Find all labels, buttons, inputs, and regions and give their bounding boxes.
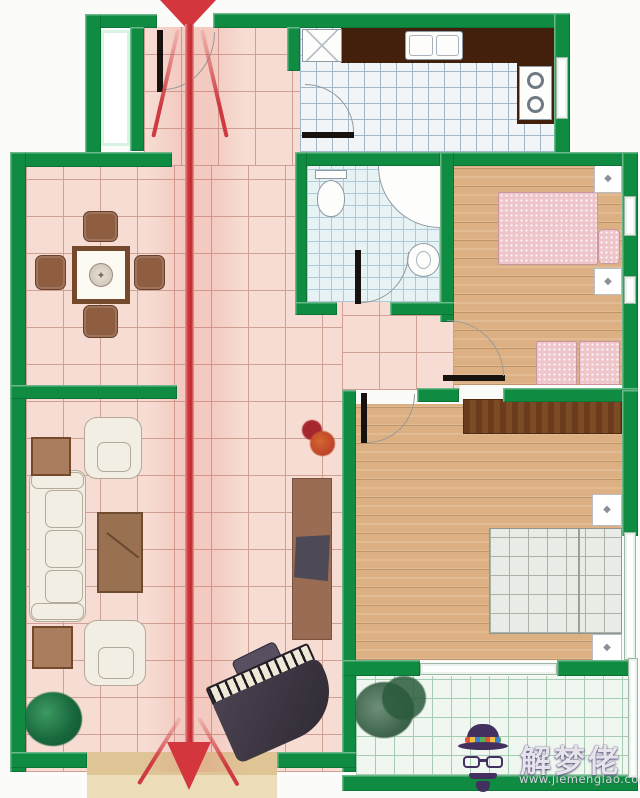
glasses-bridge [479,759,487,762]
wall-bedrooms-divider [503,388,638,402]
dining-chair-left [35,255,66,290]
armchair-top [84,417,142,479]
wall-living-bottom-right [277,752,356,768]
diamond-icon: ◆ [603,505,611,515]
toilet-bowl [317,180,345,217]
wall-kitchen-hall-divider [287,27,300,71]
wall-bathroom-bottom-left [295,302,337,315]
balcony-plant-2 [382,676,426,720]
arrow-shaft [185,24,194,746]
floor-plan-canvas: ✦ [0,0,640,798]
stove [519,66,552,120]
goatee [476,781,490,792]
dining-chair-top [83,211,118,242]
watermark-url: www.jiemenglao.com [519,772,640,786]
bath-sink-basin [416,251,431,269]
wall-entry-left [85,14,101,158]
wall-dining-living-divider [10,385,177,399]
bedroom2-bed [489,528,622,634]
sofa-cushion-3 [45,570,83,603]
living-plant [24,692,82,746]
tv [294,535,330,583]
sink-basin-right [436,35,459,56]
bath-sink [407,243,440,277]
kitchen-door-leaf [302,132,354,138]
medallion-icon: ✦ [96,269,105,282]
bedroom1-window-2 [624,276,636,304]
arrow-path-red-wash [148,27,244,772]
wall-entry-niche-right [130,27,144,151]
armchair-bottom-cushion [98,647,134,679]
bedroom1-pillow [598,229,620,264]
bedroom1-window-1 [624,196,636,236]
dining-table-medallion: ✦ [89,263,113,287]
sofa-cushion-2 [45,530,83,568]
diamond-icon: ◆ [604,277,612,287]
sink-basin-left [409,35,433,56]
dining-table: ✦ [72,246,130,304]
bedroom1-bench-seat-1 [536,341,577,385]
wall-bedroom2-bottom-left [342,660,420,676]
fridge [302,29,342,62]
toilet-tank [315,170,347,179]
side-table-bottom [32,626,73,669]
armchair-bottom [84,620,146,686]
wall-bathroom-right [440,152,454,322]
dining-chair-right [134,255,165,290]
wall-bedroom2-right [622,390,638,536]
wall-bedroom1-top [440,152,638,166]
bedroom1-nightstand-bottom: ◆ [594,268,622,295]
armchair-top-cushion [97,442,131,472]
wall-bedroom2-bottom-right [557,660,638,676]
wall-bedroom2-top-left [417,388,459,402]
red-flowers-2 [310,431,335,456]
bedroom1-nightstand-top: ◆ [594,165,622,193]
bedroom2-nightstand-top: ◆ [592,494,622,526]
glasses-right-lens [486,756,503,768]
sofa-cushion-1 [45,490,83,528]
side-table-top [31,437,71,476]
diamond-icon: ◆ [604,174,612,184]
coffee-table [97,512,143,593]
entry-niche [101,30,130,146]
bedroom2-nightstand-bottom: ◆ [592,634,622,661]
wardrobe [463,399,622,434]
wall-bathroom-top [295,152,440,166]
wall-living-bottom-left [10,752,87,768]
hat-brim [458,742,508,750]
arrow-head-bottom [167,742,211,790]
burner-2 [527,96,544,113]
wall-bathroom-left [295,152,307,314]
mustache [469,773,497,779]
bedroom2-window [624,532,636,660]
kitchen-sink [405,31,463,60]
wall-left-outer [10,152,26,772]
watermark: 解梦佬 www.jiemenglao.com [452,724,637,794]
wall-dining-top [10,152,172,167]
diamond-icon: ◆ [603,643,611,653]
coffee-table-sheen [106,532,139,558]
bedroom1-bench-seat-2 [579,341,620,385]
glasses-left-lens [463,756,480,768]
sofa [29,470,86,622]
wall-top-main [213,13,570,28]
wall-bathroom-bottom-right [390,302,454,315]
bedroom2-bed-pillow-line [578,529,580,633]
sofa-arm-bottom [31,603,84,620]
detective-icon [452,724,514,792]
wall-bedroom1-right [622,152,638,390]
dining-chair-bottom [83,305,118,338]
burner-1 [527,72,544,89]
bedroom1-bed [498,192,598,265]
balcony-door-threshold [420,663,557,675]
wall-living-bedroom2-divider [342,390,356,772]
kitchen-window [556,57,568,119]
